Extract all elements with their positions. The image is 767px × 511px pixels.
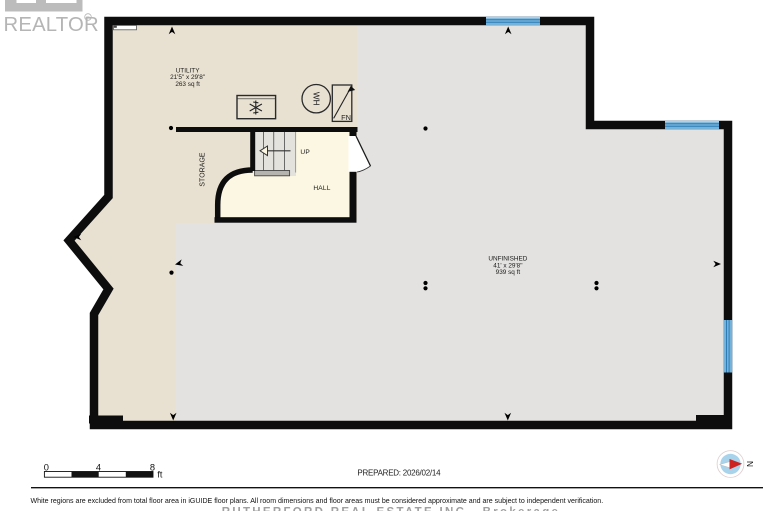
svg-text:N: N bbox=[745, 461, 754, 467]
svg-text:UNFINISHED: UNFINISHED bbox=[488, 255, 527, 262]
svg-text:R: R bbox=[86, 15, 90, 21]
svg-text:ft: ft bbox=[157, 469, 163, 479]
svg-text:UP: UP bbox=[300, 149, 310, 156]
svg-text:STORAGE: STORAGE bbox=[200, 152, 207, 187]
svg-text:HALL: HALL bbox=[313, 185, 330, 192]
svg-text:PREPARED: 2026/02/14: PREPARED: 2026/02/14 bbox=[357, 469, 441, 478]
svg-text:939 sq ft: 939 sq ft bbox=[496, 269, 521, 276]
svg-text:RUTHERFORD REAL ESTATE INC., B: RUTHERFORD REAL ESTATE INC., Brokerage bbox=[222, 507, 561, 511]
svg-text:WH: WH bbox=[312, 92, 321, 106]
svg-text:FN: FN bbox=[341, 113, 351, 122]
svg-text:White regions are excluded fro: White regions are excluded from total fl… bbox=[31, 498, 604, 505]
svg-text:263 sq ft: 263 sq ft bbox=[175, 81, 200, 88]
